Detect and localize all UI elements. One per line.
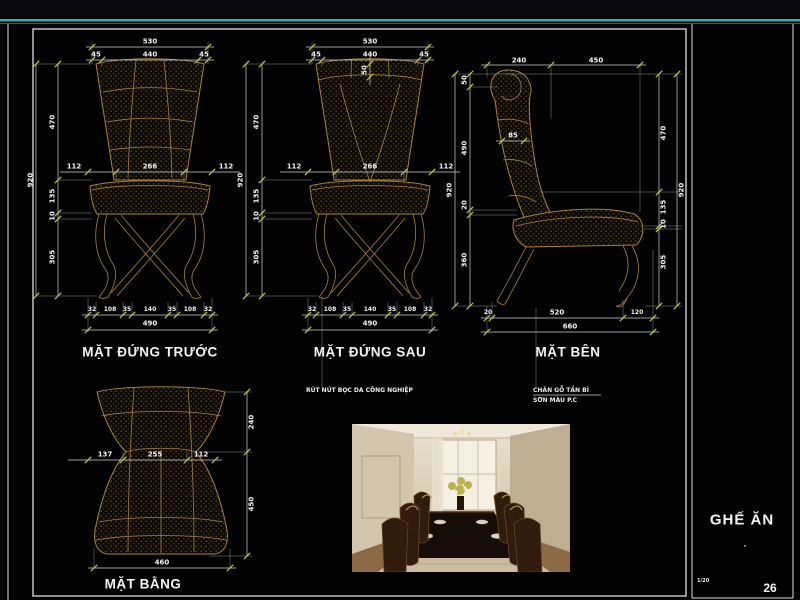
dim-back-height-total: 920 [238, 173, 245, 188]
dim-front-bottom-1: 108 [104, 307, 117, 313]
dim-back-top-2: 45 [419, 52, 429, 59]
dim-front-bottom-6: 32 [204, 307, 212, 313]
dim-plan-right-1: 450 [249, 497, 256, 512]
plan-view-drawing [95, 387, 228, 554]
dim-back-bottom-0: 32 [308, 307, 316, 313]
side-view-title: MẶT BÊN [536, 345, 601, 360]
dim-plan-right-0: 240 [249, 415, 256, 430]
dim-back-bottom-1: 108 [324, 307, 337, 313]
dim-front-mid-1: 266 [143, 164, 158, 171]
sheet-page-number: 26 [763, 581, 776, 595]
dim-back-mid-0: 112 [287, 164, 302, 171]
side-view-note-1: SƠN MÀU P.C [533, 398, 577, 404]
dim-back-bottom-4: 35 [388, 307, 396, 313]
side-elevation-drawing [491, 70, 643, 307]
dim-back-left-3: 305 [254, 250, 261, 265]
front-view-title: MẶT ĐỨNG TRƯỚC [82, 345, 217, 360]
dim-front-bottom-2: 35 [123, 307, 131, 313]
dim-back-left-1: 135 [254, 189, 261, 204]
back-elevation-drawing [310, 59, 430, 299]
dim-front-left-1: 135 [50, 189, 57, 204]
dim-front-left-2: 10 [50, 211, 57, 221]
reference-photo [352, 424, 570, 572]
dim-front-bottom-4: 35 [168, 307, 176, 313]
dim-back-top-rail: 50 [362, 65, 369, 75]
dim-front-mid-2: 112 [219, 164, 234, 171]
dim-back-left-0: 470 [254, 115, 261, 130]
dim-side-top-1: 450 [589, 58, 604, 65]
dim-back-bottom-5: 108 [404, 307, 417, 313]
dim-front-top-0: 45 [91, 52, 101, 59]
sheet-title: GHẾ ĂN [710, 512, 774, 529]
dim-plan-mid-2: 112 [194, 452, 209, 459]
dim-side-bottom-total: 660 [563, 324, 578, 331]
dim-side-right-1: 135 [661, 200, 668, 215]
dim-side-bottom-2: 120 [631, 310, 644, 316]
dim-front-bottom-3: 140 [144, 307, 157, 313]
sheet-scale: 1/20 [697, 578, 709, 584]
dim-back-bottom-3: 140 [364, 307, 377, 313]
cad-sheet: 530 45 440 45 112 266 112 470 135 10 305… [0, 0, 800, 600]
side-view-note-0: CHÂN GỖ TẦN BÌ [533, 388, 589, 394]
dim-back-bottom-6: 32 [424, 307, 432, 313]
dim-back-top-1: 440 [363, 52, 378, 59]
dim-front-height-total: 920 [28, 173, 35, 188]
dim-side-left-3: 360 [462, 253, 469, 268]
back-view-title: MẶT ĐỨNG SAU [314, 345, 426, 360]
title-bar-line [0, 0, 800, 24]
sheet-title-dot: . [744, 542, 747, 549]
dim-front-mid-0: 112 [67, 164, 82, 171]
dim-side-bottom-1: 520 [550, 310, 565, 317]
dim-side-height-total-left: 920 [447, 183, 454, 198]
dim-front-bottom-5: 108 [184, 307, 197, 313]
front-elevation-drawing [90, 59, 210, 299]
dim-side-bottom-0: 20 [484, 310, 492, 316]
plan-view-title: MẶT BẰNG [105, 577, 182, 592]
dim-back-bottom-total: 490 [363, 321, 378, 328]
dim-back-total-width: 530 [363, 39, 378, 46]
dim-front-top-1: 440 [143, 52, 158, 59]
dim-side-right-0: 470 [661, 126, 668, 141]
dim-back-left-2: 10 [254, 211, 261, 221]
dim-front-total-width: 530 [143, 39, 158, 46]
dim-side-left-1: 490 [462, 141, 469, 156]
dim-back-mid-1: 266 [363, 164, 378, 171]
dim-side-right-2: 10 [661, 219, 668, 229]
dim-back-bottom-2: 35 [343, 307, 351, 313]
dim-front-left-0: 470 [50, 115, 57, 130]
dim-side-height-total-right: 920 [679, 183, 686, 198]
dim-plan-mid-1: 255 [148, 452, 163, 459]
dim-side-top-0: 240 [512, 58, 527, 65]
dim-front-top-2: 45 [199, 52, 209, 59]
dim-front-bottom-0: 32 [88, 307, 96, 313]
dim-front-bottom-total: 490 [143, 321, 158, 328]
dim-plan-mid-0: 137 [98, 452, 113, 459]
dim-back-top-0: 45 [311, 52, 321, 59]
dim-side-left-0: 50 [462, 75, 469, 85]
dim-plan-bottom-total: 460 [155, 560, 170, 567]
dim-front-left-3: 305 [50, 250, 57, 265]
dim-side-right-3: 305 [661, 255, 668, 270]
dim-side-left-2: 20 [462, 200, 469, 210]
back-view-note: RÚT NÚT BỌC DA CÔNG NGHIỆP [306, 388, 413, 394]
dim-back-mid-2: 112 [439, 164, 454, 171]
dim-side-back-thickness: 85 [508, 133, 518, 140]
